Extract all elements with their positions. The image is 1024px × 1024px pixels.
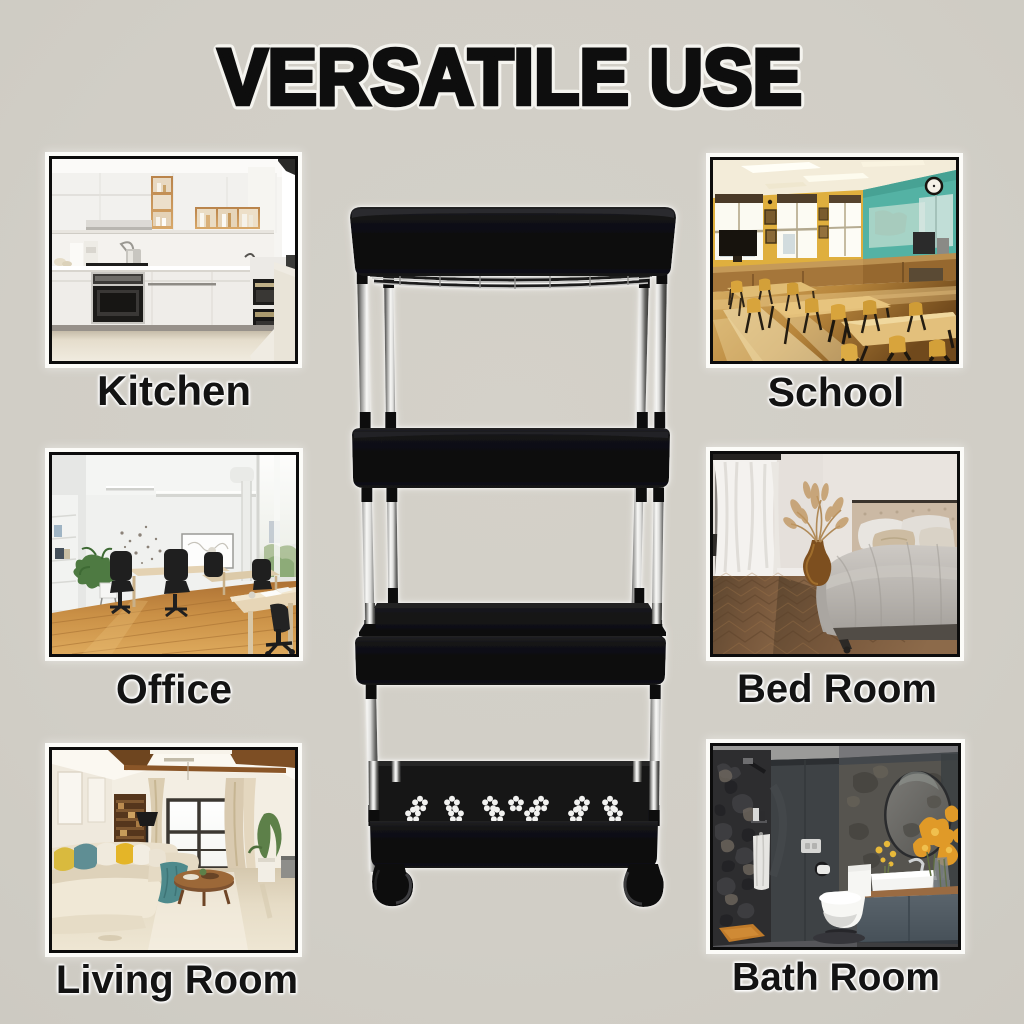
svg-text:VERSATILE USE: VERSATILE USE <box>218 32 802 121</box>
